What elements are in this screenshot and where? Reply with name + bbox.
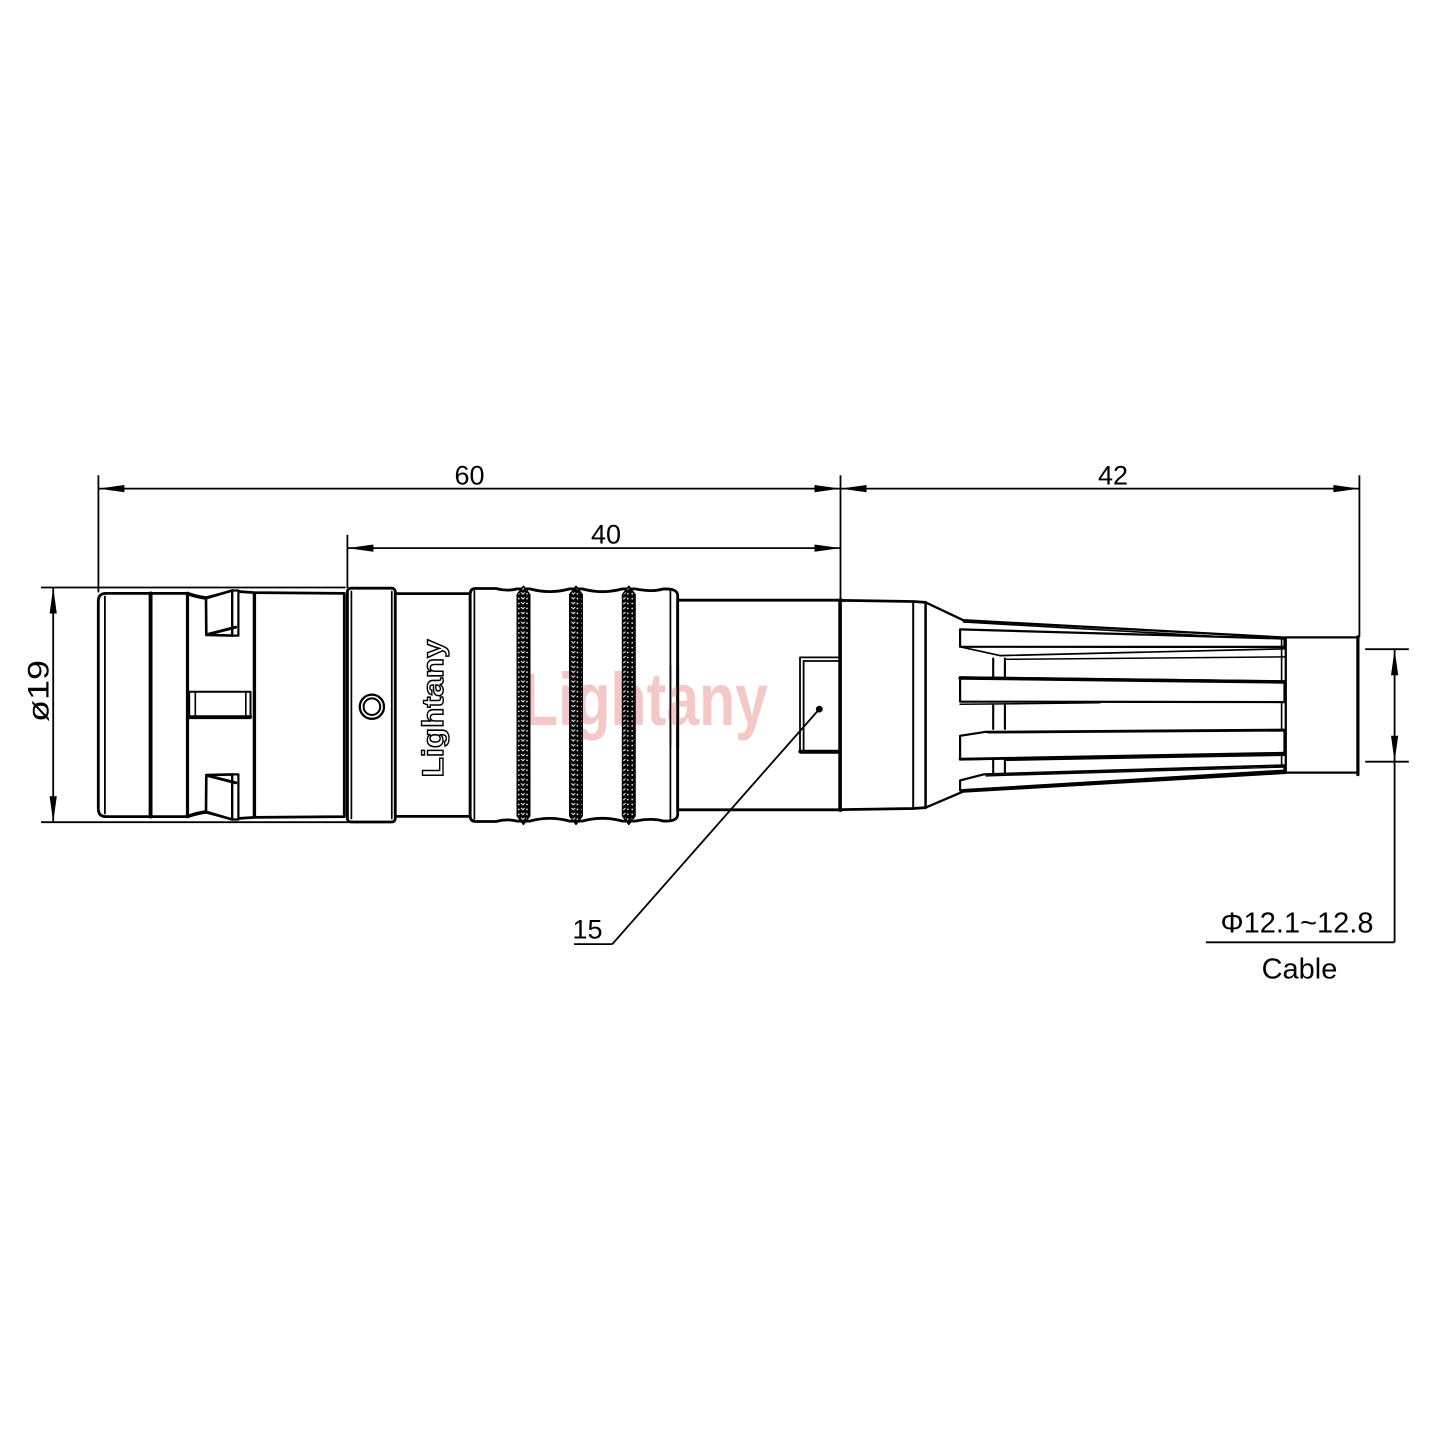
- svg-text:60: 60: [454, 460, 484, 490]
- svg-text:Lightany: Lightany: [417, 639, 450, 777]
- svg-text:Φ12.1~12.8: Φ12.1~12.8: [1221, 908, 1374, 940]
- svg-text:Lightany: Lightany: [522, 658, 768, 741]
- svg-text:ø19: ø19: [23, 660, 56, 722]
- svg-text:42: 42: [1098, 460, 1128, 490]
- svg-text:15: 15: [572, 915, 602, 945]
- svg-text:Cable: Cable: [1262, 954, 1338, 986]
- svg-text:40: 40: [591, 520, 621, 550]
